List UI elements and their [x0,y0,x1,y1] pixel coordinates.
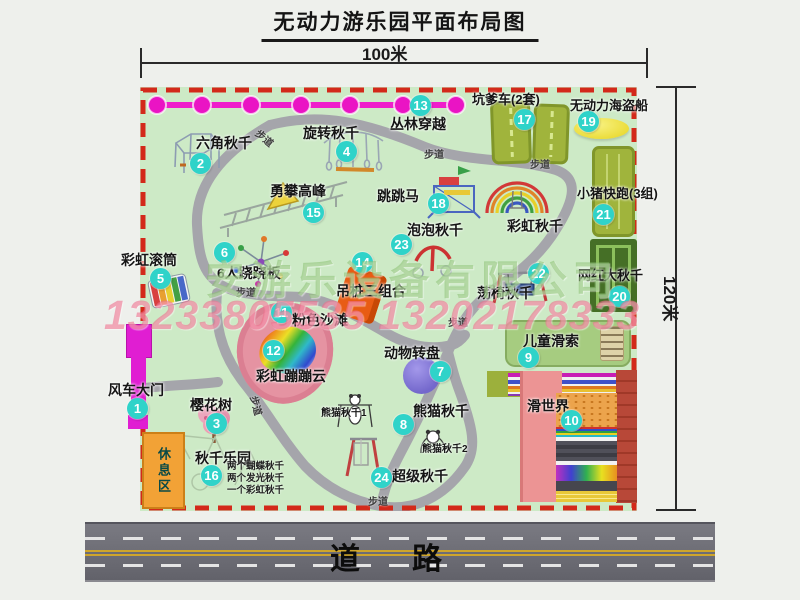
badge-18: 18 [428,193,449,214]
item-label-jungle-crossing: 丛林穿越 [390,114,446,134]
item-label-rotating-swing: 旋转秋千 [303,123,359,143]
badge-4: 4 [336,141,357,162]
item-label-bounce-cloud: 彩虹蹦蹦云 [256,366,326,386]
swing-park-note: 一个彩虹秋千 [227,485,284,497]
item-label-rainbow-swing: 彩虹秋千 [507,216,563,236]
item-label-windmill-gate: 风车大门 [108,380,164,400]
badge-10: 10 [561,410,582,431]
swing-park-note: 两个蝴蝶秋千 [227,461,284,473]
watermark-phone: 13233805535 13202178333 [104,292,640,339]
badge-15: 15 [303,202,324,223]
badge-1: 1 [127,398,148,419]
item-label-super-swing: 超级秋千 [392,466,448,486]
badge-16: 16 [201,465,222,486]
item-label-climbing-peak: 勇攀高峰 [270,181,326,201]
item-label-rainbow-roller: 彩虹滚筒 [121,250,177,270]
trail-label: 步道 [530,156,550,171]
badge-9: 9 [518,347,539,368]
park-layout-figure: 无动力游乐园平面布局图 100米 120米 [0,0,800,600]
badge-17: 17 [514,109,535,130]
badge-2: 2 [190,153,211,174]
rest-area-label: 休息区 [154,447,173,495]
item-label-panda-swing-2: 熊猫秋千2 [422,440,468,455]
badge-7: 7 [430,361,451,382]
dimension-width-label: 100米 [362,40,407,65]
trail-label: 步道 [368,493,388,508]
dimension-tick [656,86,696,88]
item-label-animal-carousel: 动物转盘 [384,343,440,363]
badge-8: 8 [393,414,414,435]
rest-area: 休息区 [142,432,185,509]
badge-5: 5 [150,268,171,289]
dimension-tick [140,48,142,78]
badge-19: 19 [578,111,599,132]
badge-12: 12 [263,340,284,361]
dimension-height-label: 120米 [659,276,684,321]
item-label-hexagon-swing: 六角秋千 [196,133,252,153]
item-label-jumping-horse: 跳跳马 [377,186,419,206]
rainbow-swing-icon [487,183,547,213]
badge-3: 3 [206,413,227,434]
item-label-bubble-swing: 泡泡秋千 [407,220,463,240]
swing-park-notes: 两个蝴蝶秋千 两个发光秋千 一个彩虹秋千 [227,461,284,497]
item-label-cherry-tree: 樱花树 [190,395,232,415]
dimension-tick [646,48,648,78]
item-label-panda-swing-1: 熊猫秋千1 [321,404,367,419]
badge-13: 13 [410,95,431,116]
badge-24: 24 [371,467,392,488]
road-label: 道路 [330,534,494,578]
item-label-pirate-ship: 无动力海盗船 [570,95,648,114]
badge-21: 21 [593,204,614,225]
item-label-pit-car: 坑爹车(2套) [472,89,540,108]
slide-world-stairs-icon [616,370,637,503]
trail-label: 步道 [424,146,444,161]
item-label-pig-run: 小猪快跑(3组) [577,183,658,202]
item-label-panda-swing: 熊猫秋千 [413,401,469,421]
swing-park-note: 两个发光秋千 [227,473,284,485]
page-title: 无动力游乐园平面布局图 [262,6,539,42]
dimension-tick [656,509,696,511]
